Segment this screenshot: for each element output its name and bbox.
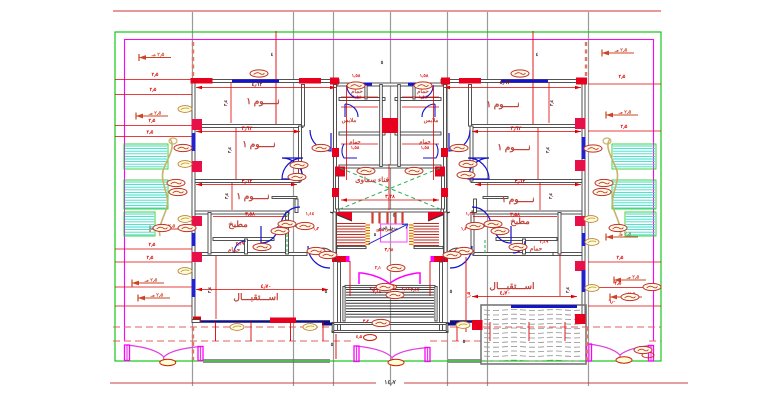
svg-text:٢٫٥: ٢٫٥ — [615, 281, 622, 287]
svg-text:٢٫١٧: ٢٫١٧ — [411, 287, 420, 292]
svg-text:١,٥٨: ١,٥٨ — [421, 145, 430, 150]
svg-text:٢٫٥ مـ: ٢٫٥ مـ — [148, 111, 162, 117]
svg-text:١٫٥: ١٫٥ — [466, 291, 471, 298]
svg-text:١,٥٨: ١,٥٨ — [352, 73, 361, 78]
svg-text:٣٫٢: ٣٫٢ — [363, 319, 370, 324]
svg-text:٢٫٥: ٢٫٥ — [152, 72, 159, 78]
svg-text:٣٫٤: ٣٫٤ — [227, 146, 232, 153]
svg-text:٤٫٦٢: ٤٫٦٢ — [500, 80, 512, 86]
svg-text:٤: ٤ — [536, 52, 539, 58]
svg-text:٤٫٧٠: ٤٫٧٠ — [500, 291, 511, 297]
svg-text:٣٫٤: ٣٫٤ — [548, 192, 553, 199]
svg-text:٥: ٥ — [450, 289, 453, 295]
svg-text:٣٫٤: ٣٫٤ — [549, 99, 554, 106]
svg-text:٥: ٥ — [463, 339, 466, 345]
svg-text:٢٫٥: ٢٫٥ — [147, 130, 154, 136]
svg-text:مطبخ: مطبخ — [228, 219, 248, 230]
svg-text:نـــــوم ١: نـــــوم ١ — [497, 142, 530, 153]
svg-text:٢٫١٢: ٢٫١٢ — [402, 286, 411, 291]
svg-text:٢٫٥ مـ: ٢٫٥ مـ — [626, 275, 640, 281]
svg-text:٦٫٠: ٦٫٠ — [609, 299, 616, 305]
svg-text:١,٥٨: ١,٥٨ — [353, 95, 362, 100]
svg-text:٢٫٥ مـ: ٢٫٥ مـ — [614, 48, 628, 54]
svg-text:نـــــوم ١: نـــــوم ١ — [242, 139, 275, 150]
svg-text:٢٫٥: ٢٫٥ — [147, 255, 154, 261]
svg-text:٣٫٦٨: ٣٫٦٨ — [385, 247, 394, 252]
svg-text:ملابس: ملابس — [424, 117, 439, 124]
svg-text:٣٫٤: ٣٫٤ — [224, 192, 229, 199]
svg-text:٣٫٥٨: ٣٫٥٨ — [245, 212, 255, 218]
svg-text:١,٥٨: ١,٥٨ — [351, 145, 360, 150]
svg-text:٥: ٥ — [331, 342, 334, 348]
svg-text:٣٫٤: ٣٫٤ — [545, 146, 550, 153]
svg-text:ملابس: ملابس — [342, 117, 357, 124]
svg-text:١,٥٨: ١,٥٨ — [419, 95, 428, 100]
svg-text:نـــــوم ١: نـــــوم ١ — [501, 194, 534, 205]
svg-text:٢٫٥ مـ: ٢٫٥ مـ — [151, 52, 165, 58]
svg-text:٣٫٥٨: ٣٫٥٨ — [510, 212, 520, 218]
svg-text:٢٫٥: ٢٫٥ — [617, 255, 624, 261]
svg-text:٣٫٤: ٣٫٤ — [565, 286, 570, 293]
svg-text:٢٫٥: ٢٫٥ — [621, 124, 628, 130]
svg-text:٤٫٥: ٤٫٥ — [356, 334, 363, 339]
svg-text:حمام: حمام — [228, 247, 241, 254]
svg-text:٤: ٤ — [271, 52, 274, 58]
svg-text:٢٫٥: ٢٫٥ — [149, 242, 156, 248]
svg-text:٣٫٢٨: ٣٫٢٨ — [385, 194, 395, 200]
svg-text:٢٫٥ مـ: ٢٫٥ مـ — [618, 110, 632, 116]
svg-text:نـــــوم ١: نـــــوم ١ — [236, 191, 269, 202]
svg-text:٢٫١: ٢٫١ — [375, 265, 381, 270]
svg-text:نـــــوم ١: نـــــوم ١ — [486, 99, 519, 110]
svg-text:١٫١٤: ١٫١٤ — [466, 211, 475, 216]
svg-text:فناء سماوى: فناء سماوى — [355, 176, 389, 184]
svg-text:٢٫٥ مـ: ٢٫٥ مـ — [150, 293, 164, 299]
svg-text:٢٫١٩: ٢٫١٩ — [236, 241, 245, 246]
svg-text:٥: ٥ — [381, 60, 384, 66]
svg-text:١٤٫٧: ١٤٫٧ — [384, 380, 396, 386]
svg-text:٢٫١٩: ٢٫١٩ — [540, 239, 549, 244]
svg-text:١٫١٤: ١٫١٤ — [306, 211, 315, 216]
svg-text:٢٫٥: ٢٫٥ — [149, 118, 156, 124]
svg-text:اســـتقبـــال: اســـتقبـــال — [233, 292, 278, 302]
svg-text:١,٥٨: ١,٥٨ — [420, 73, 429, 78]
svg-text:اســـتقبـــال: اســـتقبـــال — [489, 281, 534, 291]
svg-text:٢٫٥: ٢٫٥ — [619, 74, 626, 80]
svg-text:٢٫٥: ٢٫٥ — [150, 87, 157, 93]
svg-text:نـــــوم ١: نـــــوم ١ — [246, 96, 279, 107]
svg-text:حمام: حمام — [530, 246, 543, 253]
svg-text:٣٫٤: ٣٫٤ — [223, 99, 228, 106]
svg-text:٥: ٥ — [393, 213, 396, 219]
svg-text:٢٫٥ مـ: ٢٫٥ مـ — [144, 278, 158, 284]
